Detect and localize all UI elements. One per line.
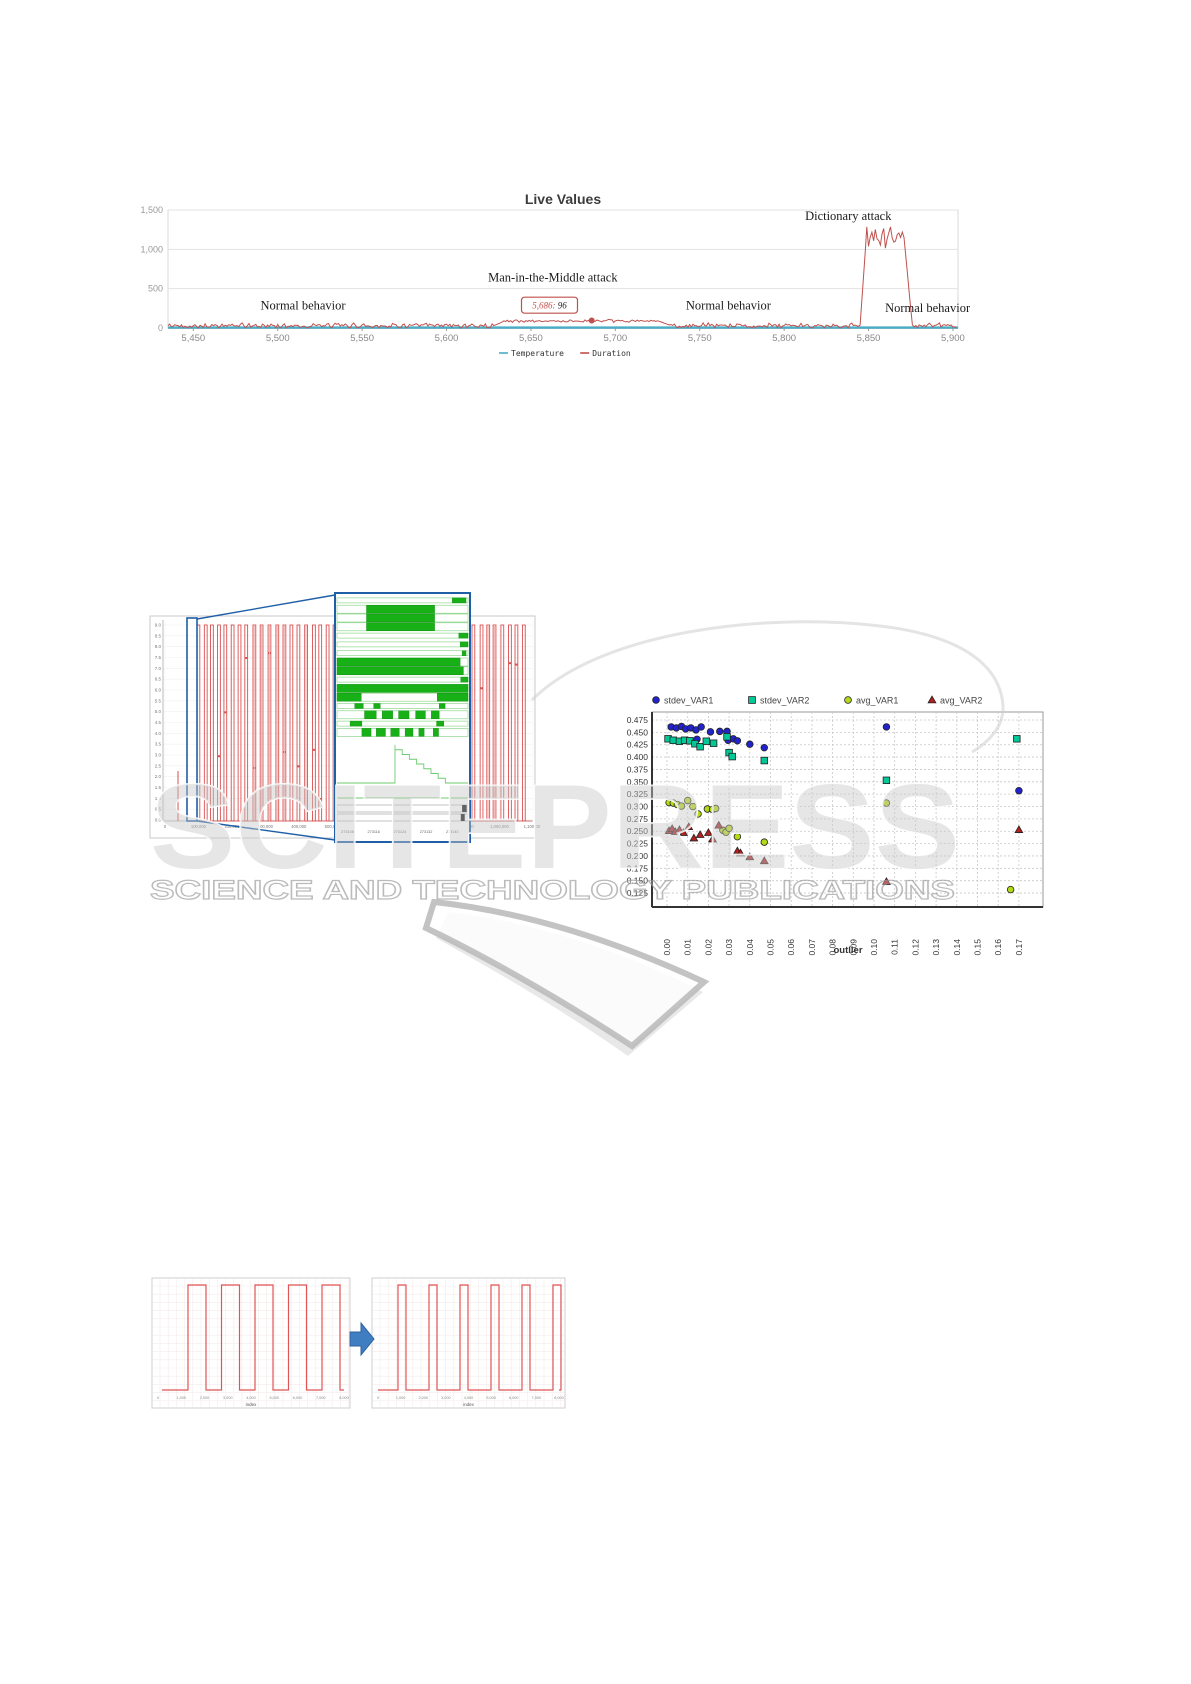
data-point [703, 738, 710, 745]
data-point [653, 697, 660, 704]
x-tick-label: 6,000 [509, 1396, 519, 1400]
x-tick-label: 0.03 [724, 939, 734, 956]
data-point [845, 697, 852, 704]
legend-label: stdev_VAR2 [760, 696, 809, 706]
inset-bar [437, 721, 444, 726]
data-point [690, 803, 697, 810]
data-point [928, 696, 936, 703]
y-tick-label: 2.0 [155, 774, 162, 779]
x-tick-label: 5,450 [181, 333, 205, 344]
y-tick-label: 0.450 [627, 727, 649, 737]
inset-bar [433, 728, 438, 736]
inset-bar [337, 684, 468, 692]
x-axis-title: index [463, 1402, 475, 1407]
inset-x-tick-label: 273108 [341, 830, 354, 834]
data-point [695, 811, 702, 818]
x-tick-label: 5,000 [486, 1396, 496, 1400]
x-tick-label: 0.01 [683, 939, 693, 956]
data-point [1014, 735, 1021, 742]
data-point [716, 728, 723, 735]
data-point [734, 833, 741, 840]
inset-bar [439, 704, 445, 709]
annotation: Normal behavior [261, 299, 347, 313]
y-tick-label: 0.275 [627, 814, 649, 824]
chart-frame [152, 1278, 350, 1408]
y-tick-label: 7.0 [155, 666, 162, 671]
y-tick-label: 5.5 [155, 698, 162, 703]
y-tick-label: 0.200 [627, 851, 649, 861]
annotation: Normal behavior [885, 301, 970, 315]
inset-bar [355, 704, 364, 709]
annotation: Dictionary attack [805, 209, 892, 223]
inset-bar [365, 711, 377, 719]
x-tick-label: 2,000 [200, 1396, 210, 1400]
x-tick-label: 0.06 [786, 939, 796, 956]
data-marker [515, 664, 517, 666]
x-tick-label: 0.10 [869, 939, 879, 956]
figure-wave-transform: 01,0002,0003,0004,0005,0006,0007,0008,00… [148, 1272, 578, 1424]
inset-x-tick-label: 273140 [446, 830, 459, 834]
data-marker [509, 662, 511, 664]
x-tick-label: 8,000 [339, 1396, 349, 1400]
x-tick-label: 5,000 [269, 1396, 279, 1400]
x-tick-label: 5,600 [435, 333, 459, 344]
x-tick-label: 400,000 [291, 824, 307, 829]
x-tick-label: 5,550 [350, 333, 374, 344]
inset-black-marker [462, 805, 467, 812]
x-tick-label: 1,100,000 [524, 824, 540, 829]
x-tick-label: 0 [157, 1396, 159, 1400]
x-tick-label: 6,000 [293, 1396, 303, 1400]
x-tick-label: 5,900 [941, 333, 965, 344]
x-tick-label: 0.00 [662, 939, 672, 956]
inset-track [337, 651, 468, 656]
data-point [726, 825, 733, 832]
paper-page: Live Values 05001,0001,5005,4505,5005,55… [0, 0, 1191, 1684]
x-tick-label: 0.02 [703, 939, 713, 956]
x-tick-label: 3,000 [441, 1396, 451, 1400]
x-tick-label: 0.11 [890, 939, 900, 955]
data-point [712, 805, 719, 812]
y-tick-label: 0.250 [627, 826, 649, 836]
data-marker [297, 765, 299, 767]
legend-label: stdev_VAR1 [664, 696, 713, 706]
data-marker [481, 687, 483, 689]
x-tick-label: 2,000 [418, 1396, 428, 1400]
legend-label: Temperature [511, 349, 564, 358]
x-tick-label: 0.07 [807, 939, 817, 956]
inset-bar [374, 704, 381, 709]
inset-bar [337, 693, 361, 701]
x-tick-label: 7,000 [316, 1396, 326, 1400]
x-tick-label: 5,700 [603, 333, 627, 344]
annotation: Normal behavior [686, 299, 772, 313]
figure-live-values: Live Values 05001,0001,5005,4505,5005,55… [140, 190, 970, 375]
inset-bar [362, 728, 371, 736]
inset-bar [419, 728, 424, 736]
x-tick-label: 0.04 [745, 939, 755, 956]
y-tick-label: 1.5 [155, 785, 162, 790]
x-tick-label: 5,650 [519, 333, 543, 344]
data-point [761, 839, 768, 846]
data-point [747, 741, 754, 748]
y-tick-label: 0.225 [627, 839, 649, 849]
inset-black-marker [461, 814, 465, 821]
x-tick-label: 300,000 [258, 824, 274, 829]
data-marker [245, 657, 247, 659]
x-tick-label: 8,000 [554, 1396, 564, 1400]
data-point [678, 803, 685, 810]
data-point [761, 744, 768, 751]
inset-bar [452, 598, 466, 603]
live-chart-title: Live Values [525, 191, 601, 207]
inset-bar [382, 711, 392, 719]
inset-bar [391, 728, 400, 736]
x-tick-label: 0.15 [973, 939, 983, 956]
y-tick-label: 9.0 [155, 623, 162, 628]
y-tick-label: 6.5 [155, 677, 162, 682]
y-tick-label: 6.0 [155, 688, 162, 693]
inset-track [337, 677, 468, 682]
inset-x-tick-label: 273124 [394, 830, 407, 834]
y-tick-label: 0.150 [627, 876, 649, 886]
x-tick-label: 0.13 [931, 939, 941, 956]
y-tick-label: 0.400 [627, 752, 649, 762]
zoom-connector-top [197, 595, 335, 619]
inset-bar [376, 728, 385, 736]
inset-marker-track [337, 814, 468, 821]
x-tick-label: 5,850 [857, 333, 881, 344]
data-point [697, 743, 704, 750]
y-tick-label: 0.425 [627, 740, 649, 750]
inset-track [337, 598, 468, 603]
data-marker [224, 711, 226, 713]
figure-signal-zoom: 9.08.58.07.57.06.56.05.55.04.54.03.53.02… [148, 588, 540, 850]
inset-marker-track [337, 805, 468, 812]
y-tick-label: 4.0 [155, 731, 162, 736]
y-tick-label: 0.175 [627, 863, 649, 873]
data-point [734, 737, 741, 744]
data-point [729, 753, 736, 760]
y-tick-label: 3.5 [155, 742, 162, 747]
x-tick-label: 1,000 [176, 1396, 186, 1400]
y-tick-label: 500 [148, 284, 163, 294]
inset-x-tick-label: 273132 [420, 830, 433, 834]
y-tick-label: 1.0 [155, 796, 162, 801]
y-tick-label: 8.0 [155, 644, 162, 649]
inset-bar [431, 711, 439, 719]
data-point [1007, 886, 1014, 893]
x-tick-label: 0 [377, 1396, 379, 1400]
x-axis-title: index [246, 1402, 258, 1407]
x-tick-label: 0.14 [952, 939, 962, 956]
data-marker [319, 798, 321, 800]
data-point [698, 724, 705, 731]
inset-bar [366, 605, 434, 613]
y-tick-label: 0.325 [627, 789, 649, 799]
x-tick-label: 7,000 [532, 1396, 542, 1400]
y-tick-label: 5.0 [155, 709, 162, 714]
x-tick-label: 5,750 [688, 333, 712, 344]
inset-bar [366, 614, 434, 622]
inset-bar [405, 728, 413, 736]
data-point [761, 757, 768, 764]
data-point [724, 734, 731, 741]
legend-label: Duration [592, 349, 631, 358]
x-tick-label: 3,000 [223, 1396, 233, 1400]
inset-track [337, 642, 468, 647]
inset-bar [461, 677, 468, 682]
transform-arrow-icon [350, 1323, 374, 1355]
inset-bar [350, 721, 362, 726]
data-point [1016, 787, 1023, 794]
inset-bar [366, 623, 434, 631]
inset-bar [399, 711, 409, 719]
y-tick-label: 0.300 [627, 802, 649, 812]
inset-bar [460, 642, 468, 647]
x-tick-label: 0.05 [766, 939, 776, 956]
x-tick-label: 0.09 [848, 939, 858, 956]
legend-label: avg_VAR2 [940, 696, 982, 706]
tooltip-text: 5,686: 96 [532, 301, 567, 311]
data-marker [218, 755, 220, 757]
x-tick-label: 0.08 [828, 939, 838, 956]
data-point [749, 697, 756, 704]
y-tick-label: 7.5 [155, 655, 162, 660]
y-tick-label: 1,000 [140, 244, 163, 254]
y-tick-label: 3.0 [155, 753, 162, 758]
inset-bar [337, 667, 463, 675]
y-tick-label: 0.125 [627, 888, 649, 898]
y-tick-label: 0.0 [155, 818, 162, 823]
y-tick-label: 2.5 [155, 763, 162, 768]
figure-outlier-scatter: outlier 0.000.010.020.030.040.050.060.07… [600, 690, 1080, 965]
data-point [883, 777, 890, 784]
inset-x-tick-label: 273116 [367, 830, 379, 834]
data-point [710, 740, 717, 747]
inset-bar [459, 633, 468, 638]
data-point [707, 729, 714, 736]
inset-track [337, 633, 468, 638]
x-tick-label: 0.12 [910, 939, 920, 956]
data-point [670, 737, 677, 744]
data-point [883, 800, 890, 807]
y-tick-label: 0.375 [627, 764, 649, 774]
x-tick-label: 0.17 [1014, 939, 1024, 956]
annotation: Man-in-the-Middle attack [488, 271, 618, 285]
data-point [883, 724, 890, 731]
inset-track [337, 728, 468, 736]
data-point [684, 797, 691, 804]
y-tick-label: 0 [158, 323, 163, 333]
x-tick-label: 1,000 [396, 1396, 406, 1400]
inset-bar [437, 693, 468, 701]
legend-label: avg_VAR1 [856, 696, 898, 706]
y-tick-label: 8.5 [155, 633, 162, 638]
x-tick-label: 4,000 [246, 1396, 256, 1400]
inset-bar [416, 711, 426, 719]
x-tick-label: 1,000,000 [490, 824, 509, 829]
x-tick-label: 5,800 [772, 333, 796, 344]
y-tick-label: 0.5 [155, 807, 162, 812]
inset-bar [337, 658, 460, 666]
x-tick-label: 0.16 [993, 939, 1003, 956]
x-tick-label: 4,000 [464, 1396, 474, 1400]
y-tick-label: 1,500 [140, 205, 163, 215]
y-tick-label: 4.5 [155, 720, 162, 725]
inset-bar [462, 651, 466, 656]
x-tick-label: 5,500 [266, 333, 290, 344]
y-tick-label: 0.475 [627, 715, 649, 725]
data-marker [313, 749, 315, 751]
y-tick-label: 0.350 [627, 777, 649, 787]
hover-marker-dot [589, 317, 595, 323]
x-tick-label: 100,000 [191, 824, 207, 829]
